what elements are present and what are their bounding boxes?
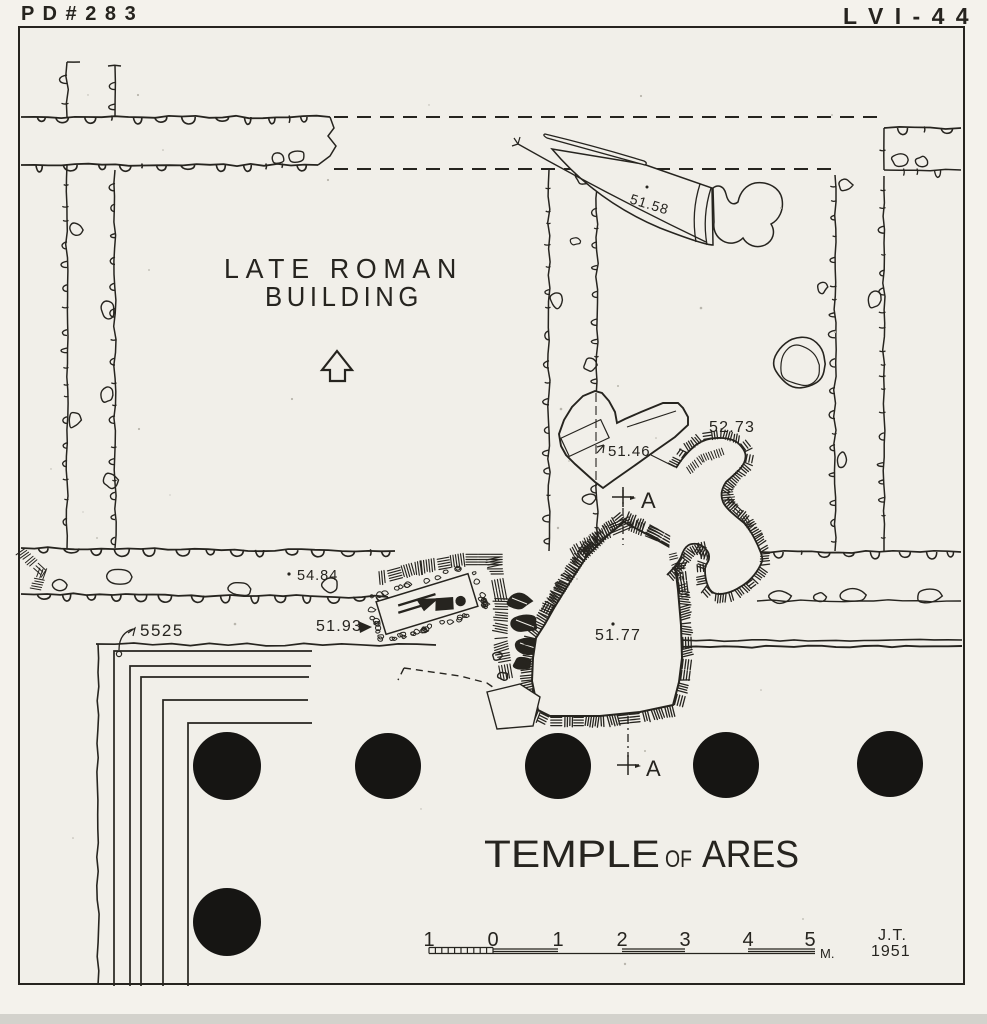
- svg-text:L V I - 4 4: L V I - 4 4: [843, 3, 971, 29]
- svg-text:1: 1: [423, 929, 434, 951]
- svg-text:3: 3: [679, 929, 690, 951]
- svg-text:0: 0: [487, 929, 498, 951]
- svg-text:A: A: [641, 488, 656, 513]
- svg-text:5525: 5525: [140, 621, 184, 640]
- svg-text:52.73: 52.73: [709, 419, 755, 436]
- svg-text:P D # 2 8 3: P D # 2 8 3: [21, 3, 137, 25]
- svg-text:2: 2: [616, 929, 627, 951]
- svg-text:4: 4: [742, 929, 753, 951]
- svg-text:LATE ROMAN: LATE ROMAN: [224, 253, 463, 284]
- svg-text:M.: M.: [820, 946, 834, 961]
- svg-text:51.46: 51.46: [608, 443, 651, 460]
- svg-text:TEMPLE: TEMPLE: [484, 834, 660, 876]
- svg-text:1951: 1951: [871, 943, 911, 960]
- svg-text:51.93: 51.93: [316, 618, 362, 635]
- svg-text:BUILDING: BUILDING: [265, 281, 423, 312]
- svg-text:J.T.: J.T.: [878, 927, 907, 944]
- svg-text:1: 1: [552, 929, 563, 951]
- svg-text:ARES: ARES: [702, 834, 799, 876]
- svg-text:OF: OF: [665, 846, 692, 873]
- svg-text:5: 5: [804, 929, 815, 951]
- svg-text:A: A: [646, 756, 661, 781]
- svg-text:51.77: 51.77: [595, 627, 641, 644]
- svg-text:54.84: 54.84: [297, 568, 338, 584]
